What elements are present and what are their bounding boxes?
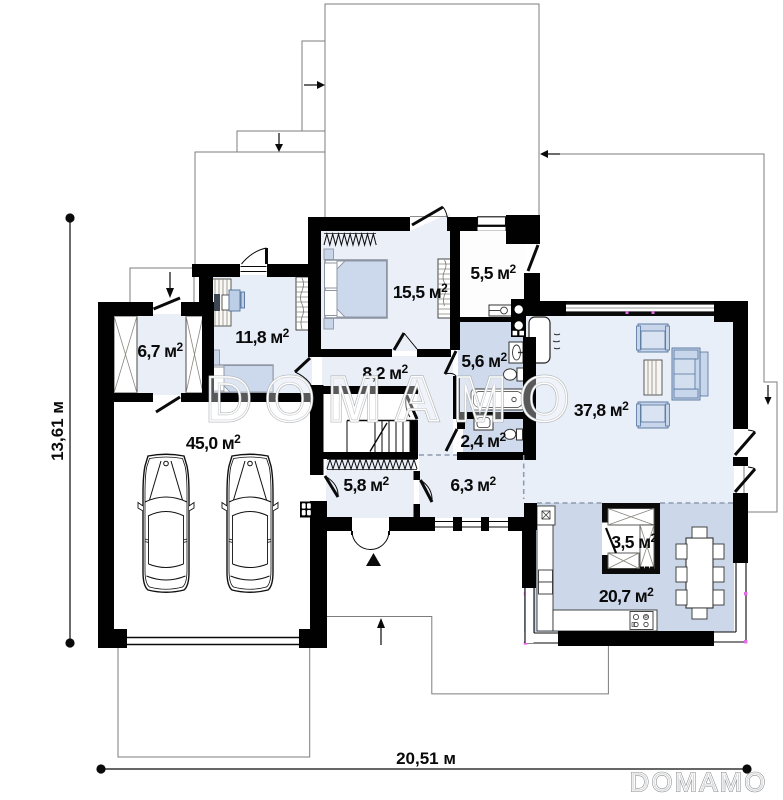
svg-text:DOMAMO: DOMAMO	[206, 363, 583, 435]
svg-text:20,51 м: 20,51 м	[396, 749, 456, 768]
svg-text:15,5 м2: 15,5 м2	[393, 281, 448, 302]
svg-text:20,7 м2: 20,7 м2	[599, 585, 654, 606]
svg-text:45,0 м2: 45,0 м2	[186, 432, 241, 453]
svg-text:11,8 м2: 11,8 м2	[235, 326, 289, 347]
svg-text:13,61 м: 13,61 м	[48, 401, 67, 461]
svg-text:DOMAMO: DOMAMO	[630, 767, 768, 797]
